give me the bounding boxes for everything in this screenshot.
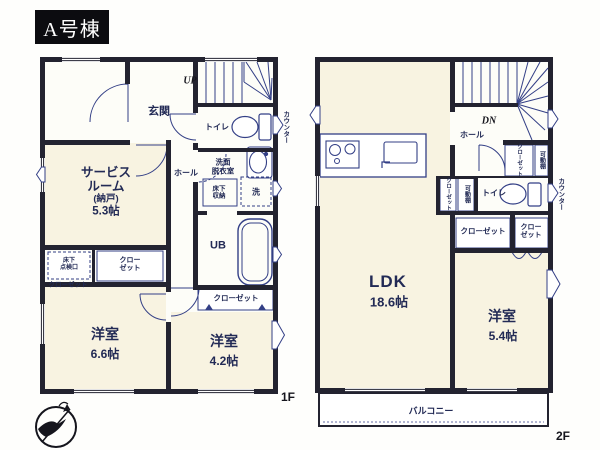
- label-upper-shelf: 可動棚: [538, 151, 545, 169]
- floor1-label: 1F: [281, 391, 295, 405]
- label-stairs-dn: DN: [482, 115, 496, 127]
- label-inspection-hatch: 床下 点検口: [60, 258, 78, 272]
- floor2-label: 2F: [556, 430, 570, 444]
- label-closet-h: クローゼット: [461, 228, 506, 237]
- label-entrance: 玄関: [148, 106, 170, 119]
- floor2-plan: [310, 57, 560, 426]
- label-closet-bedroom2: クローゼット: [214, 295, 259, 304]
- kitchen-counter: [320, 134, 426, 177]
- label-bedroom1-size: 6.6帖: [91, 348, 120, 362]
- label-stairs-up: UP: [183, 75, 196, 87]
- label-side-closet: クローゼット: [445, 178, 451, 211]
- ldk-floor: [320, 62, 450, 388]
- label-bedroom2-size: 4.2帖: [210, 355, 239, 369]
- label-counter-1f: カウンター: [281, 111, 288, 144]
- bedroom2-floor: [171, 312, 273, 389]
- label-unit-bath: UB: [210, 240, 226, 253]
- floorplan-page: A号棟 玄関 UP トイレ カウンター 洗面 脱衣室 床下 収納 洗 UB ホー…: [0, 0, 600, 450]
- label-upper-closet: クローゼット: [516, 144, 522, 177]
- label-bedroom3-size: 5.4帖: [489, 330, 518, 344]
- label-ldk-size: 18.6帖: [370, 296, 408, 311]
- label-balcony: バルコニー: [409, 406, 454, 416]
- label-closet-service: クロー ゼット: [120, 257, 141, 273]
- building-title: A号棟: [35, 10, 109, 44]
- compass-icon: [36, 402, 76, 447]
- label-toilet-2f: トイレ: [482, 188, 506, 197]
- label-closet-stack-2f: クロー ゼット: [521, 224, 542, 240]
- label-hall-2f: ホール: [460, 130, 484, 139]
- label-closet-note: クローゼット: [49, 281, 88, 288]
- label-ldk: LDK: [369, 272, 407, 292]
- label-hall-1f: ホール: [174, 168, 198, 177]
- floorplan-drawing: [0, 0, 600, 450]
- label-washroom: 洗面 脱衣室: [212, 158, 235, 175]
- toilet-fixture-1f: [232, 114, 271, 140]
- label-bedroom2: 洋室: [210, 333, 238, 349]
- toilet-fixture-2f: [500, 183, 541, 206]
- label-laundry: 洗: [252, 187, 260, 196]
- label-bedroom3: 洋室: [488, 308, 516, 324]
- label-service-room: サービス ルーム (納戸) 5.3帖: [81, 166, 131, 219]
- label-side-shelf: 可動棚: [463, 185, 470, 203]
- label-toilet-1f: トイレ: [205, 122, 229, 131]
- label-bedroom1: 洋室: [91, 326, 119, 342]
- label-counter-2f: カウンター: [556, 178, 563, 211]
- label-underfloor-storage: 床下 収納: [213, 186, 226, 201]
